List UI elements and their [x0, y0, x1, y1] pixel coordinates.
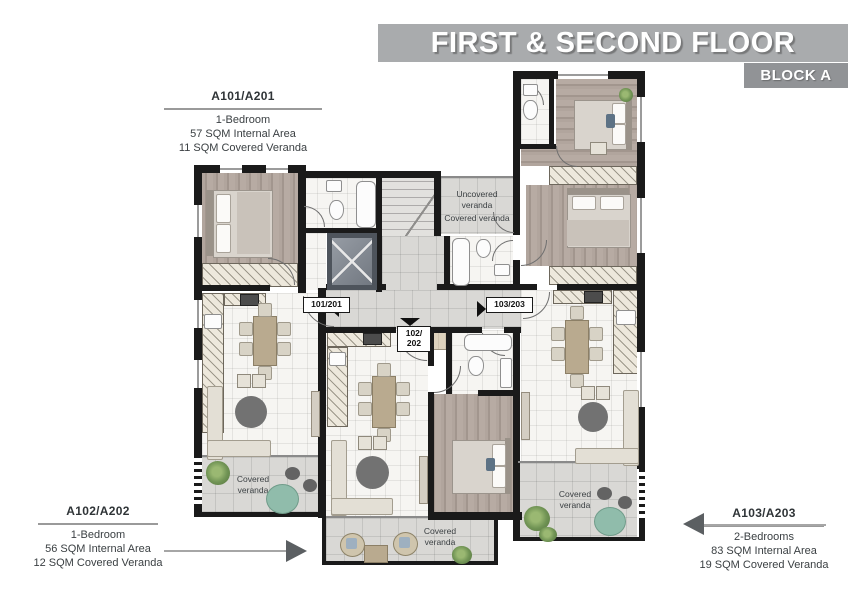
dining-table [565, 320, 589, 374]
sofa [575, 448, 639, 464]
door-label-text: 202 [407, 339, 421, 349]
plant [619, 88, 633, 102]
stool [252, 374, 266, 388]
veranda-table [594, 507, 626, 536]
bed-blanket [237, 192, 270, 254]
accent-pillow [486, 458, 495, 471]
stove [584, 291, 603, 303]
door-label-101: 101/201 [303, 297, 350, 313]
coffee-table [356, 456, 389, 489]
louvered-window [639, 469, 645, 519]
chair [277, 342, 291, 356]
wall-segment [194, 165, 306, 173]
window [637, 97, 645, 142]
floor-plan: 101/201 103/203 102/202 Uncovered verand… [0, 0, 862, 610]
window [558, 71, 608, 79]
veranda-stool [597, 487, 612, 500]
chair-cushion [399, 537, 410, 548]
veranda-parapet [494, 518, 498, 561]
veranda-edge [441, 176, 513, 178]
label-covered-veranda-a102: Covered veranda [414, 526, 466, 548]
pillow [216, 194, 231, 223]
veranda-table [364, 545, 388, 563]
chair [358, 382, 372, 396]
coffee-table [578, 402, 608, 432]
tv-unit [419, 456, 428, 504]
bed-headboard [626, 98, 632, 150]
kitchen-sink [616, 310, 636, 325]
stool [596, 386, 610, 400]
stool [237, 374, 251, 388]
sink [523, 84, 538, 96]
wall-segment [549, 79, 554, 146]
chair [396, 382, 410, 396]
veranda-parapet [322, 561, 498, 565]
veranda-parapet [639, 519, 645, 541]
elevator [327, 233, 377, 290]
chair [589, 327, 603, 341]
window [266, 165, 288, 173]
veranda-parapet [194, 512, 320, 517]
tv-unit [521, 392, 530, 440]
veranda-stool [618, 496, 632, 509]
a103-wardrobe1 [549, 166, 637, 185]
wall-segment [444, 236, 450, 290]
wall-segment [300, 171, 440, 178]
label-covered-veranda-top: Covered veranda [439, 213, 515, 224]
wall-segment [428, 392, 434, 514]
pillow [216, 224, 231, 253]
door-label-text: 101/201 [311, 300, 342, 310]
door-direction-icon [477, 301, 486, 317]
louvered-window [194, 455, 202, 505]
kitchen-sink [204, 314, 222, 329]
window [194, 205, 202, 237]
sink [494, 264, 510, 276]
chair [239, 342, 253, 356]
coffee-table [235, 396, 267, 428]
chair [358, 402, 372, 416]
door-direction-icon [400, 318, 420, 326]
tv-unit [311, 391, 320, 437]
veranda-parapet [322, 518, 326, 561]
window [637, 198, 645, 253]
toilet [476, 239, 491, 258]
bathtub [452, 238, 470, 286]
stove [363, 333, 382, 345]
a103-kitchen-counter-top [553, 290, 612, 304]
vanity [500, 358, 512, 388]
wall-segment [194, 285, 270, 291]
a103-wardrobe2 [549, 266, 637, 285]
chair [377, 363, 391, 377]
chair [551, 347, 565, 361]
stool [373, 436, 387, 450]
chair [570, 306, 584, 320]
chair [239, 322, 253, 336]
plant [452, 546, 472, 564]
chair [396, 402, 410, 416]
floor-plan-page: FIRST & SECOND FLOOR BLOCK A A101/A201 1… [0, 0, 862, 610]
elevator-x-icon [332, 238, 372, 285]
door-label-102: 102/202 [397, 326, 431, 352]
wall-segment [322, 327, 396, 333]
window [194, 360, 202, 388]
chair-cushion [346, 538, 357, 549]
label-covered-veranda-a103: Covered veranda [548, 489, 602, 511]
veranda-parapet [518, 537, 645, 541]
toilet [329, 200, 344, 220]
door-label-text: 103/203 [494, 300, 525, 310]
veranda-edge [326, 516, 428, 518]
pillow [600, 196, 624, 210]
sofa [331, 498, 393, 515]
wall-segment [478, 390, 520, 396]
chair [258, 303, 272, 317]
toilet [468, 356, 484, 376]
chair [277, 322, 291, 336]
veranda-stool [285, 467, 300, 480]
window [220, 165, 242, 173]
pillow [572, 196, 596, 210]
stool [358, 436, 372, 450]
bathtub [464, 334, 512, 351]
stair-landing [382, 236, 444, 290]
wall-segment [513, 330, 520, 463]
bed-blanket [567, 220, 629, 246]
plant [539, 527, 557, 542]
wall-segment [513, 71, 521, 146]
bed-headboard [206, 190, 213, 256]
sink [326, 180, 342, 192]
kitchen-sink [329, 352, 346, 366]
bathtub [356, 181, 376, 228]
window [194, 300, 202, 328]
door-label-103: 103/203 [486, 297, 533, 313]
toilet [523, 100, 538, 120]
a103-kitchen-counter-side [613, 290, 639, 374]
bed-bench [590, 142, 607, 155]
wall-segment [513, 144, 556, 149]
dining-table [253, 316, 277, 366]
chair [589, 347, 603, 361]
wall-segment [430, 327, 482, 333]
sofa [207, 440, 271, 457]
dining-table [372, 376, 396, 428]
wall-segment [437, 284, 537, 290]
wall-segment [428, 512, 522, 520]
wall-segment [434, 171, 441, 236]
stove [240, 294, 259, 306]
accent-pillow [606, 114, 615, 128]
veranda-parapet [513, 463, 520, 541]
label-uncovered-veranda: Uncovered veranda [445, 189, 509, 211]
plant [206, 461, 230, 485]
stool [581, 386, 595, 400]
wall-segment [557, 284, 645, 290]
veranda-stool [303, 479, 317, 492]
chair [551, 327, 565, 341]
a103-bedroom-hall [521, 149, 556, 166]
veranda-table [266, 484, 299, 514]
